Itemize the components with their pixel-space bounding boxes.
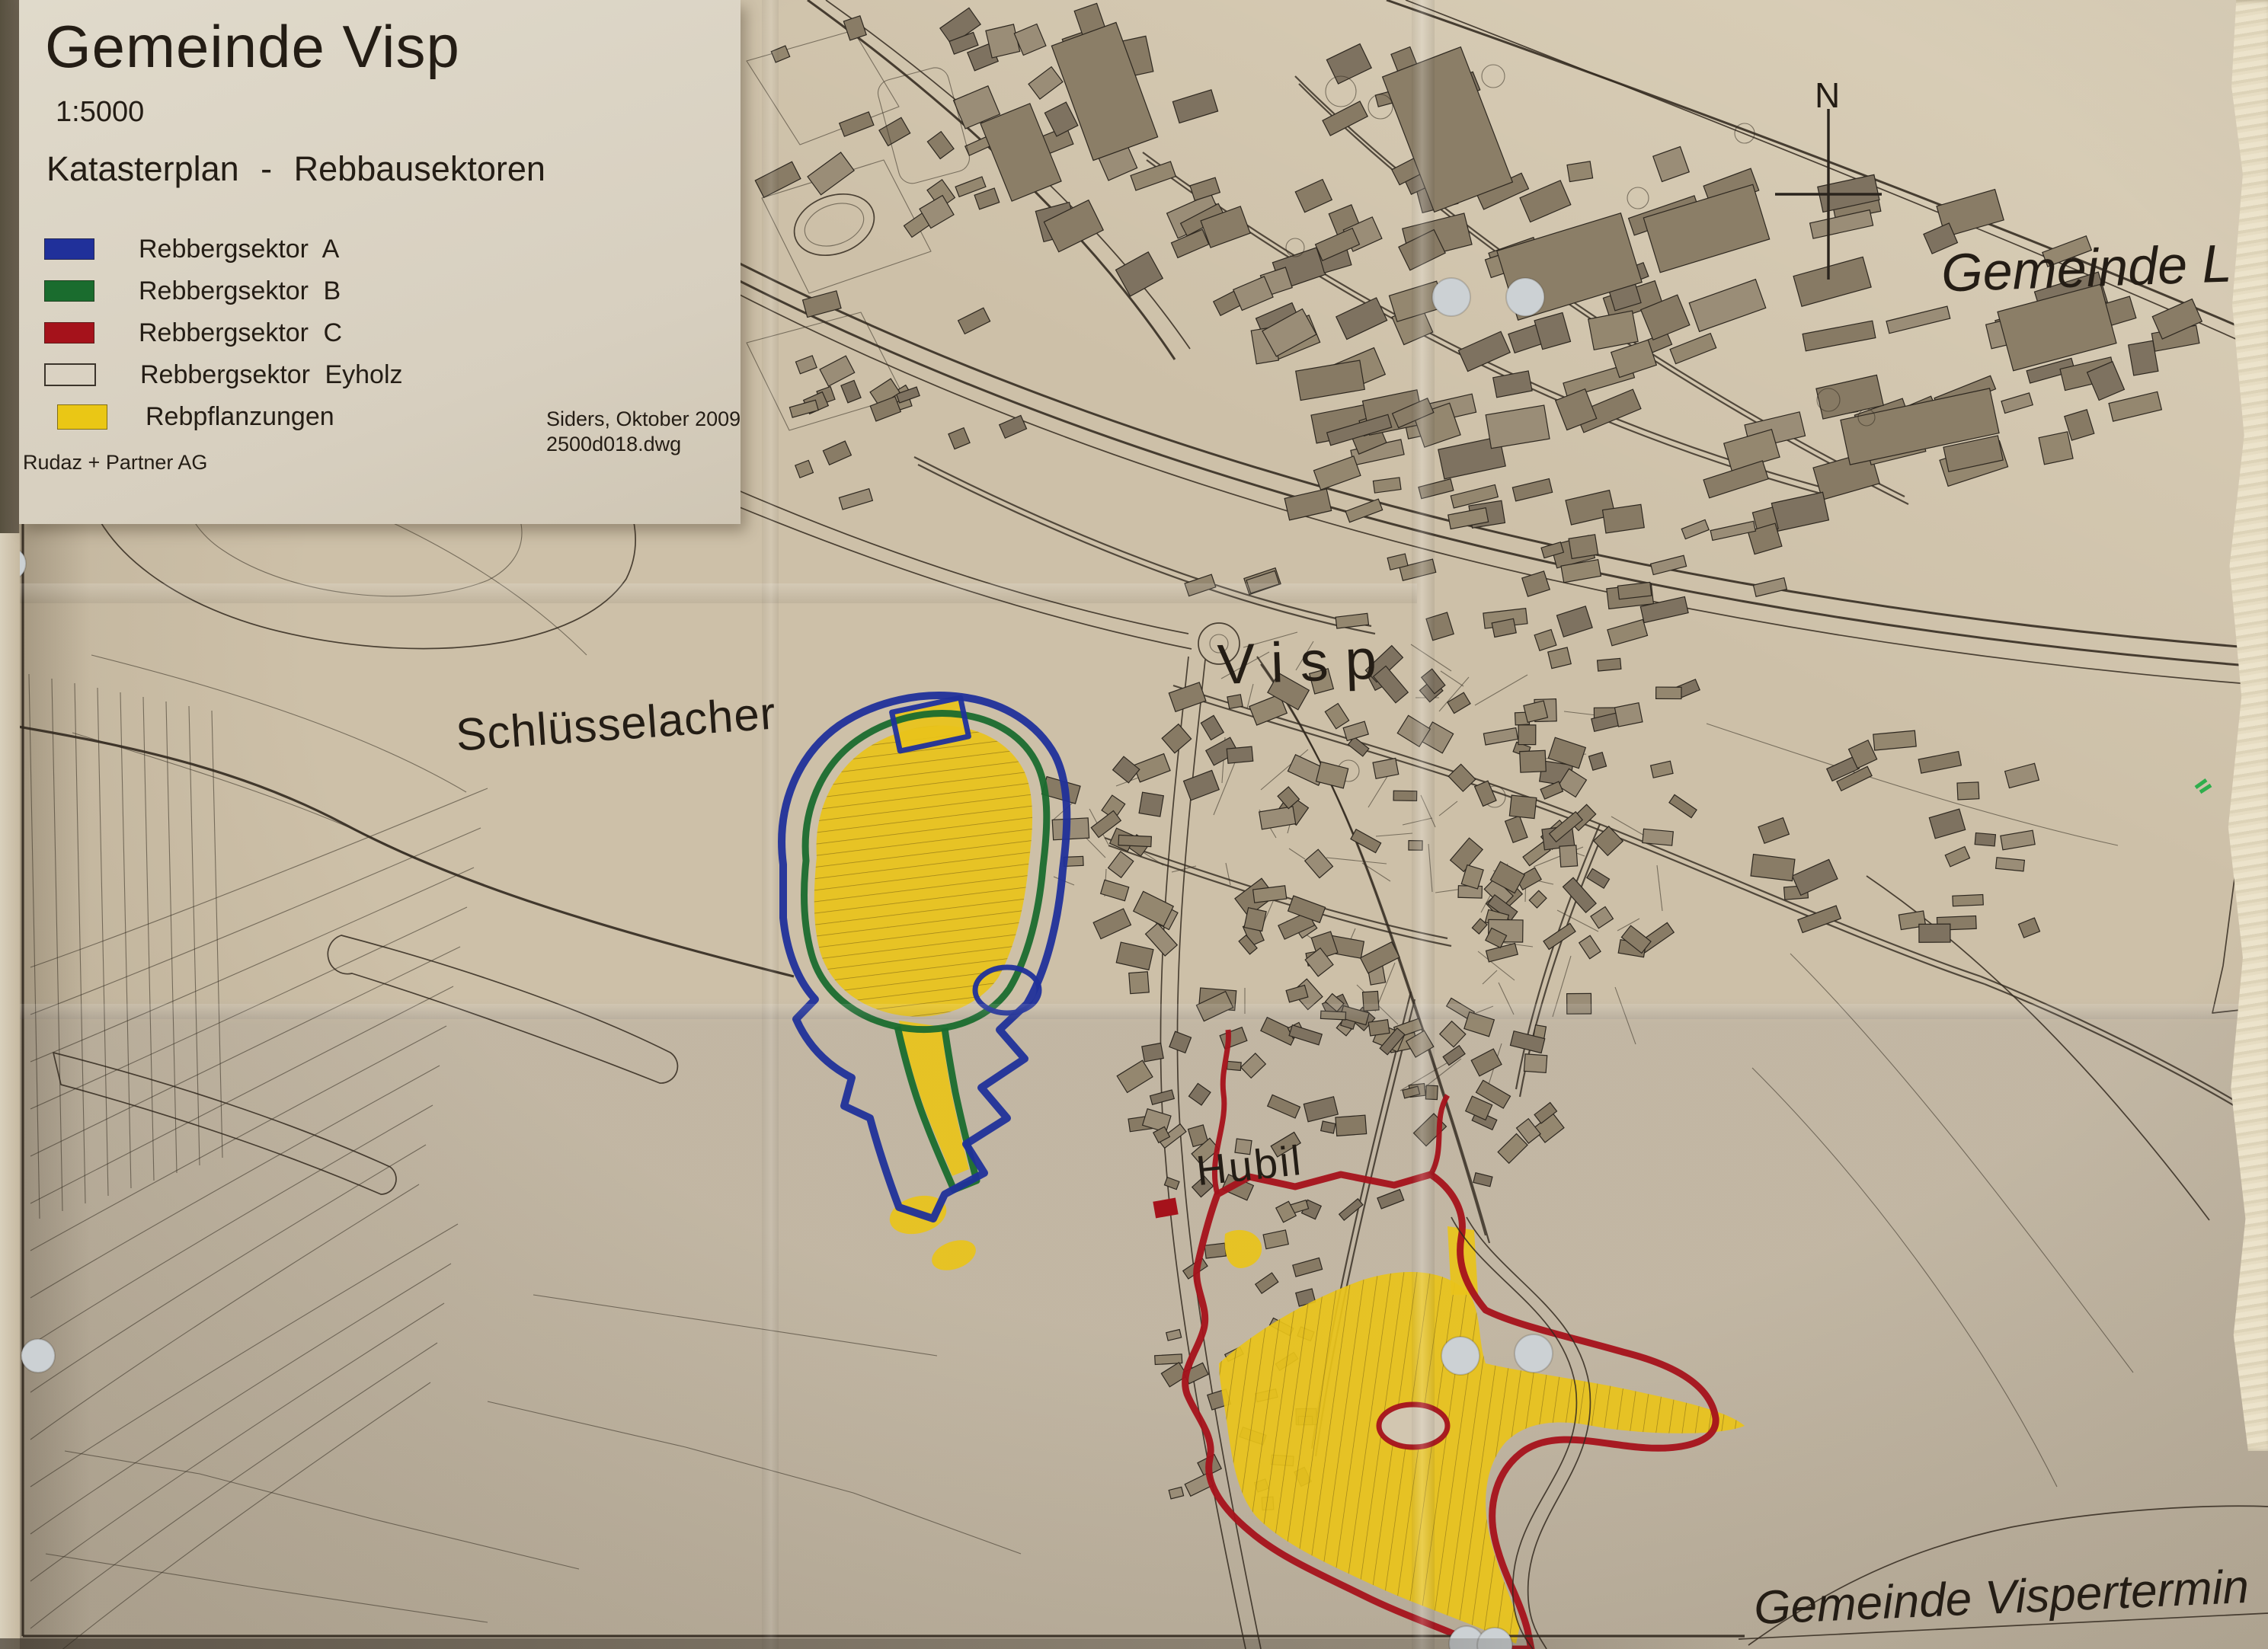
map-scale: 1:5000 (56, 96, 144, 129)
rebpflanzungen-schluesselacher (814, 701, 1032, 1277)
green-pen-mark (2196, 780, 2211, 792)
legend-swatch-0 (44, 238, 94, 260)
legend-swatch-2 (44, 322, 94, 344)
label-visp: Visp (1217, 626, 1394, 697)
rebpflanzungen-sector-c (1219, 1226, 1745, 1644)
legend-item-1: Rebbergsektor B (44, 276, 403, 305)
map-title: Gemeinde Visp (45, 12, 460, 81)
legend-label-4: Rebpflanzungen (146, 402, 334, 432)
photographed-cadastral-map: Gemeinde Visp 1:5000 Katasterplan - Rebb… (0, 0, 2268, 1649)
north-arrow (1775, 109, 1882, 280)
label-gemeinde-right: Gemeinde L (1940, 232, 2233, 303)
plan-note: Siders, Oktober 2009 2500d018.dwg (546, 407, 741, 457)
label-north-n: N (1815, 75, 1840, 116)
legend-swatch-4 (57, 404, 107, 430)
title-block-sheet: Gemeinde Visp 1:5000 Katasterplan - Rebb… (19, 0, 741, 524)
legend-swatch-3 (44, 363, 96, 386)
legend-item-3: Rebbergsektor Eyholz (44, 360, 403, 389)
legend: Rebbergsektor ARebbergsektor BRebbergsek… (44, 235, 403, 444)
plan-note-place-date: Siders, Oktober 2009 (546, 407, 741, 432)
legend-item-0: Rebbergsektor A (44, 235, 403, 264)
legend-label-0: Rebbergsektor A (139, 235, 339, 264)
surveyor-firm: Rudaz + Partner AG (23, 451, 207, 475)
legend-swatch-1 (44, 280, 94, 302)
legend-label-3: Rebbergsektor Eyholz (140, 360, 403, 390)
legend-item-2: Rebbergsektor C (44, 318, 403, 347)
plan-note-filename: 2500d018.dwg (546, 432, 741, 457)
legend-label-2: Rebbergsektor C (139, 318, 342, 348)
legend-item-4: Rebpflanzungen (57, 402, 403, 431)
legend-label-1: Rebbergsektor B (139, 276, 341, 306)
map-subtitle: Katasterplan - Rebbausektoren (46, 149, 545, 189)
sector-c-small-patch (1153, 1198, 1178, 1219)
